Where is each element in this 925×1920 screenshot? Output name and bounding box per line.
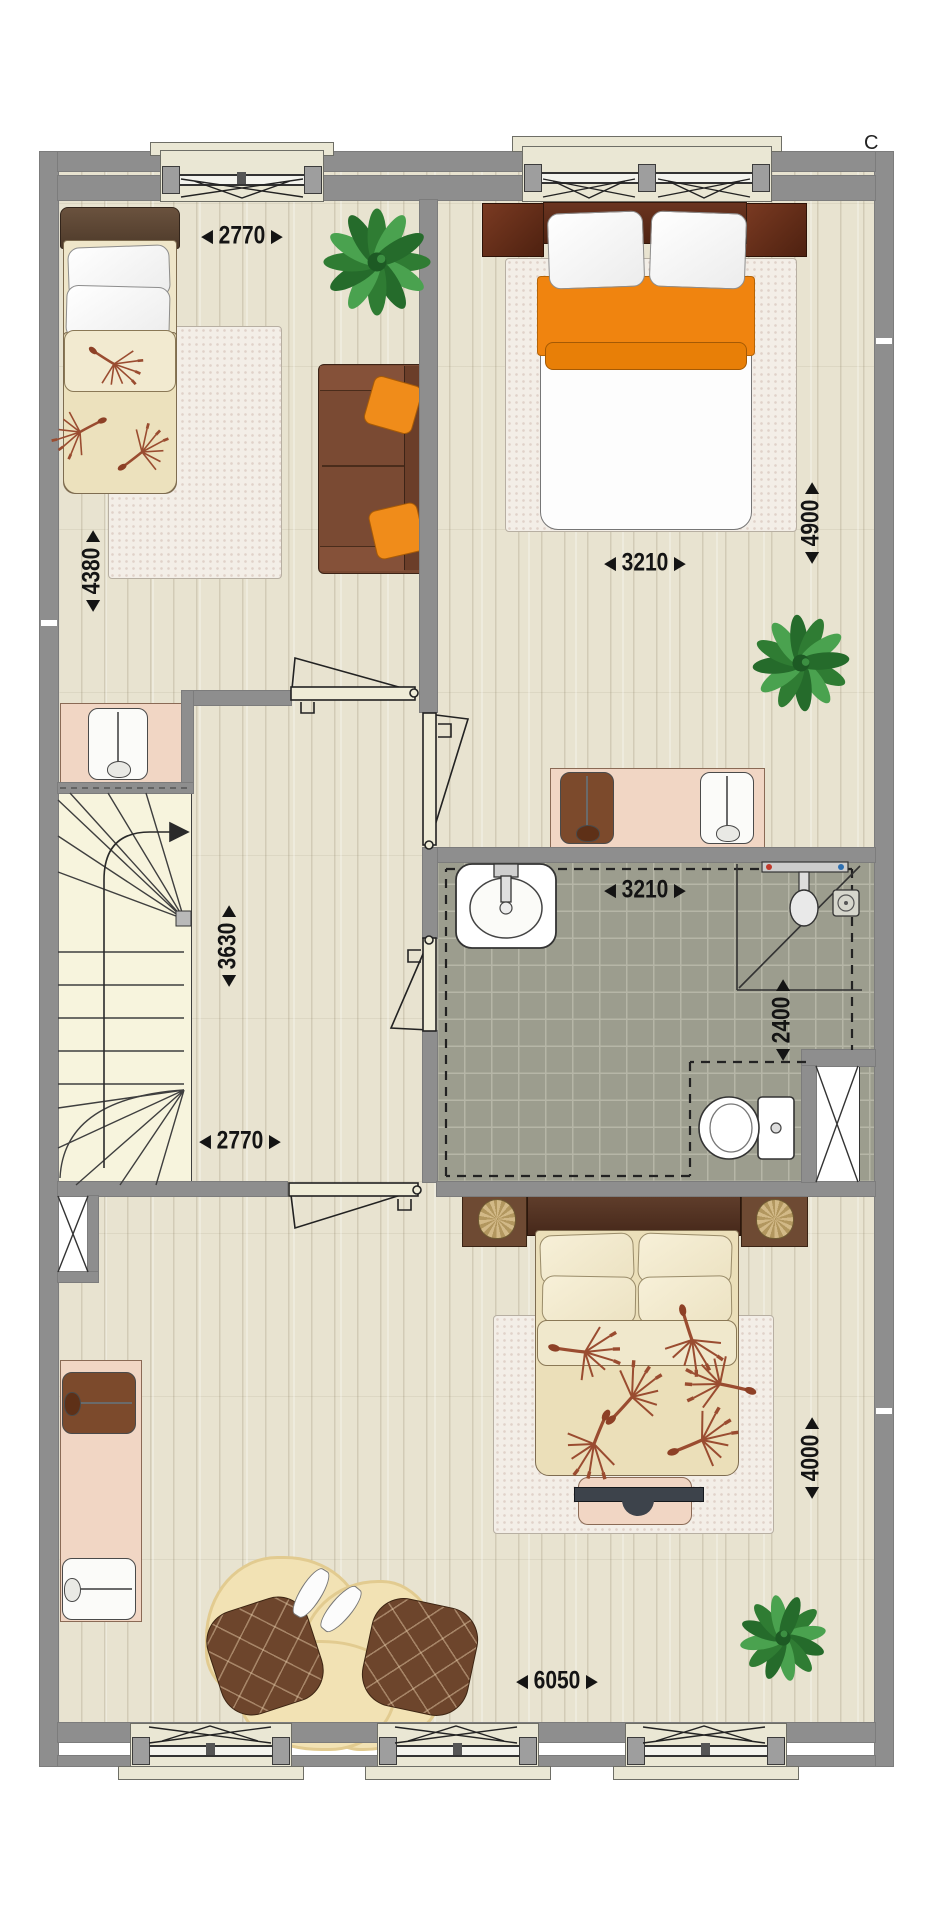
bed3-pillow	[542, 1275, 637, 1325]
bed2-throw-fold	[545, 342, 747, 370]
dimension-bedroom3-width: ◀ 6050 ▶	[517, 1667, 597, 1696]
wall-bedroom1-bottom	[182, 691, 291, 705]
dim-arrow-end: ▶	[271, 228, 282, 245]
dim-arrow-end: ▶	[269, 1133, 280, 1150]
window-sill	[118, 1766, 304, 1780]
dimension-bedroom1-width: ◀ 2770 ▶	[202, 222, 282, 251]
dim-arrow-end: ▶	[84, 531, 101, 542]
duct-bathroom	[816, 1066, 860, 1184]
wall-joint	[876, 338, 892, 344]
dimension-bedroom1-depth: ◀ 4380 ▶	[78, 531, 107, 611]
dim-value: 6050	[534, 1667, 581, 1696]
window-sill	[613, 1766, 799, 1780]
dim-value: 4000	[797, 1435, 826, 1482]
dim-arrow-end: ▶	[803, 483, 820, 494]
dim-arrow-start: ◀	[200, 1133, 211, 1150]
dimension-bedroom2-depth: ◀ 4900 ▶	[797, 483, 826, 563]
window-bottom-2	[377, 1723, 537, 1778]
window-jamb	[272, 1737, 290, 1765]
sofa-seam	[322, 465, 404, 467]
bed2-pillow	[547, 210, 646, 289]
dim-arrow-start: ◀	[803, 1487, 820, 1498]
dim-value: 3630	[214, 923, 243, 970]
wall-exterior-right	[875, 152, 893, 1766]
window-jamb	[524, 164, 542, 192]
window-bottom-1	[130, 1723, 290, 1778]
dim-value: 2400	[768, 997, 797, 1044]
window-mullion	[206, 1743, 215, 1755]
wall-niche	[182, 691, 193, 783]
window-jamb	[519, 1737, 537, 1765]
dim-arrow-end: ▶	[220, 906, 237, 917]
wall-bathroom-left-lower	[423, 1031, 437, 1182]
dim-arrow-end: ▶	[586, 1673, 597, 1690]
dim-arrow-start: ◀	[84, 600, 101, 611]
dim-arrow-start: ◀	[803, 552, 820, 563]
dim-value: 4380	[78, 548, 107, 595]
wall-bathroom-bottom	[437, 1182, 875, 1196]
desk3-chair-white	[62, 1558, 136, 1620]
wall-landing-bottom	[58, 1182, 287, 1196]
desk3-chair-brown	[62, 1372, 136, 1434]
chair-bedroom1	[88, 708, 148, 780]
section-marker: C	[864, 132, 878, 155]
dim-value: 4900	[797, 500, 826, 547]
dim-arrow-end: ▶	[774, 980, 791, 991]
wall-joint	[876, 1408, 892, 1414]
wall-duct-left	[802, 1066, 816, 1182]
dim-value: 3210	[622, 876, 669, 905]
window-top-1	[160, 142, 322, 200]
dimension-bathroom-width: ◀ 3210 ▶	[605, 876, 685, 905]
window-mullion	[237, 172, 246, 184]
dim-arrow-start: ◀	[774, 1049, 791, 1060]
window-jamb	[767, 1737, 785, 1765]
window-mullion	[701, 1743, 710, 1755]
wall-exterior-left	[40, 152, 58, 1766]
window-jamb	[627, 1737, 645, 1765]
bed3-pillow	[638, 1275, 733, 1325]
window-jamb	[379, 1737, 397, 1765]
window-jamb	[162, 166, 180, 194]
wall-duct2-right	[88, 1196, 98, 1282]
basket	[756, 1199, 794, 1239]
bed3-duvet-fold	[537, 1320, 737, 1366]
window-jamb	[752, 164, 770, 192]
nightstand-right	[745, 203, 807, 257]
wall-bedroom-divider	[420, 200, 437, 712]
dim-arrow-start: ◀	[605, 882, 616, 899]
window-top-2	[522, 136, 770, 200]
dimension-bedroom2-width: ◀ 3210 ▶	[605, 549, 685, 578]
dimension-bathroom-depth: ◀ 2400 ▶	[768, 980, 797, 1060]
dim-arrow-end: ▶	[674, 555, 685, 572]
window-mullion	[453, 1743, 462, 1755]
dimension-landing-depth: ◀ 3630 ▶	[214, 906, 243, 986]
dimension-landing-width: ◀ 2770 ▶	[200, 1127, 280, 1156]
dim-value: 3210	[622, 549, 669, 578]
wall-stair-top	[58, 783, 193, 793]
staircase	[58, 793, 192, 1187]
wall-bathroom-top	[423, 848, 875, 862]
dim-arrow-start: ◀	[220, 975, 237, 986]
dim-arrow-start: ◀	[605, 555, 616, 572]
window-jamb	[638, 164, 656, 192]
dim-arrow-start: ◀	[202, 228, 213, 245]
bed1-duvet-fold	[64, 330, 176, 392]
window-sill	[365, 1766, 551, 1780]
wall-duct-top	[802, 1050, 875, 1066]
wall-joint	[41, 620, 57, 626]
desk-chair-white	[700, 772, 754, 844]
nightstand-left	[482, 203, 544, 257]
dimension-bedroom3-depth: ◀ 4000 ▶	[797, 1418, 826, 1498]
desk-chair-brown	[560, 772, 614, 844]
floor-plan: ◀ 2770 ▶ ◀ 4380 ▶ ◀ 3210 ▶ ◀ 4900 ▶ ◀ 36…	[0, 0, 925, 1920]
duct-bedroom3	[58, 1196, 90, 1274]
window-bottom-3	[625, 1723, 785, 1778]
dim-arrow-end: ▶	[674, 882, 685, 899]
dim-arrow-start: ◀	[517, 1673, 528, 1690]
dim-arrow-end: ▶	[803, 1418, 820, 1429]
window-jamb	[304, 166, 322, 194]
window-jamb	[132, 1737, 150, 1765]
wall-duct2-bottom	[58, 1272, 98, 1282]
dim-value: 2770	[219, 222, 266, 251]
basket	[478, 1199, 516, 1239]
wall-bathroom-left-upper	[423, 848, 437, 938]
bed2-pillow	[649, 210, 748, 289]
dim-value: 2770	[217, 1127, 264, 1156]
